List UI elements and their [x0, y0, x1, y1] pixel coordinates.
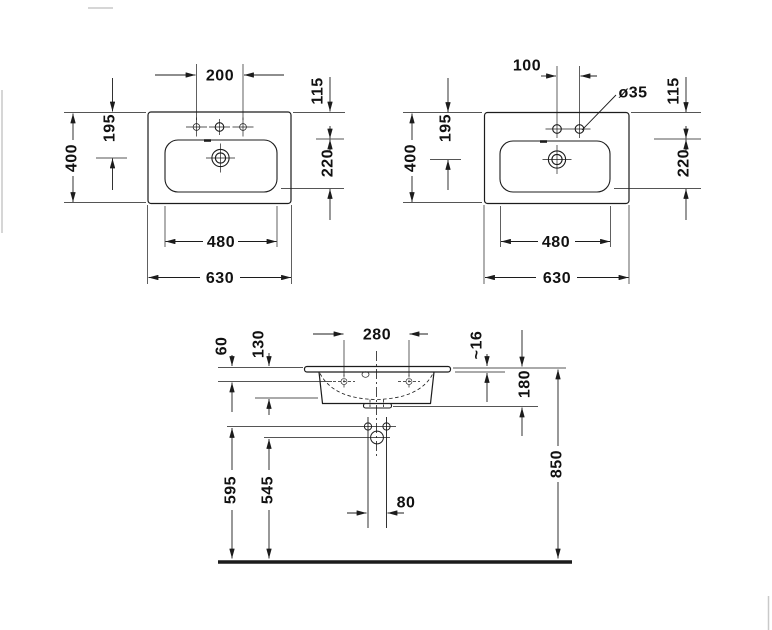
drain-right	[543, 145, 572, 174]
extension-lines-left	[64, 64, 345, 284]
dim-label-630-left: 630	[206, 270, 234, 287]
dim-label-dia35: ø35	[618, 85, 647, 102]
dim-label-280: 280	[363, 327, 391, 344]
dim-label-480-left: 480	[207, 234, 235, 251]
dim-label-100: 100	[513, 58, 541, 75]
dim-label-630-right: 630	[543, 270, 571, 287]
dim-label-400-right: 400	[403, 144, 420, 172]
dim-label-60: 60	[214, 337, 231, 356]
tap-holes-right	[546, 120, 591, 138]
technical-drawing-page: 200 115 195 400 220 480 630	[0, 0, 772, 630]
dim-label-115-left: 115	[310, 77, 327, 104]
scan-edge-marks	[2, 8, 769, 630]
basin-bowl-left	[165, 140, 277, 192]
dim-label-180: 180	[517, 370, 534, 398]
dim-label-115-right: 115	[666, 77, 683, 104]
basin-bowl-right	[500, 141, 610, 192]
top-view-right: 100 ø35 115 195 400 220 480 630	[403, 58, 701, 288]
dim-label-195-left: 195	[102, 114, 119, 142]
front-section-view: 60 130 280 ~16 180 595 545 850 80	[214, 327, 572, 562]
dim-label-16: ~16	[469, 331, 486, 360]
rim-slab	[305, 367, 451, 373]
dim-label-220-left: 220	[320, 149, 337, 177]
dim-label-200: 200	[206, 68, 234, 85]
dim-label-480-right: 480	[542, 234, 570, 251]
dim-label-850: 850	[549, 450, 566, 478]
dim-label-220-right: 220	[676, 149, 693, 177]
dim-label-400-left: 400	[64, 144, 81, 172]
dimension-lines-front	[232, 330, 558, 559]
dim-label-195-right: 195	[438, 114, 455, 142]
dim-label-545: 545	[260, 476, 277, 504]
dim-label-130: 130	[251, 330, 268, 358]
tap-holes-left	[186, 118, 254, 137]
extension-lines-front	[218, 340, 566, 438]
drain-left	[206, 144, 235, 173]
drain-flange	[364, 404, 392, 409]
washbasin-dimension-drawing: 200 115 195 400 220 480 630	[0, 0, 772, 630]
dim-label-595: 595	[223, 476, 240, 504]
dim-label-80: 80	[397, 495, 416, 512]
top-view-left: 200 115 195 400 220 480 630	[64, 64, 345, 287]
